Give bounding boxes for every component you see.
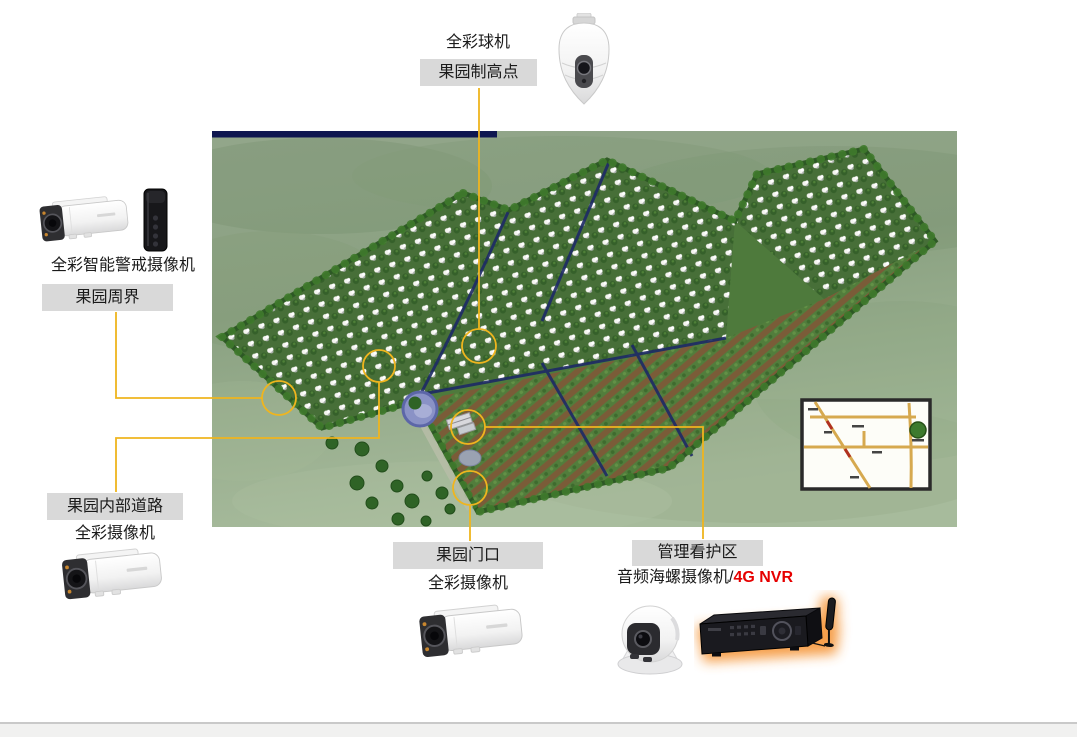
road-location-box: 果园内部道路 <box>47 493 183 520</box>
footer-strip <box>0 722 1077 737</box>
road-device-label: 全彩摄像机 <box>47 524 183 544</box>
orchard-site-dot <box>910 422 926 438</box>
bullet-camera-icon <box>52 544 172 604</box>
site-location-inset-map <box>802 400 930 489</box>
management-location-box: 管理看护区 <box>632 540 763 566</box>
bullet-camera-icon <box>34 184 134 254</box>
turret-camera-icon <box>610 598 690 678</box>
4g-nvr-icon <box>694 590 864 680</box>
ptz-dome-camera-icon <box>551 13 617 109</box>
management-device-label: 音频海螺摄像机/4G NVR <box>605 568 805 588</box>
gate-location-box: 果园门口 <box>393 542 543 569</box>
gate-device-label: 全彩摄像机 <box>393 574 543 594</box>
management-device-prefix: 音频海螺摄像机/ <box>617 569 733 586</box>
orchard-aerial-rendering <box>212 131 957 527</box>
highpoint-device-label: 全彩球机 <box>408 33 548 53</box>
bullet-camera-icon <box>412 600 530 662</box>
perimeter-device-label: 全彩智能警戒摄像机 <box>36 256 210 276</box>
navy-top-bar <box>212 131 497 138</box>
perimeter-location-box: 果园周界 <box>42 284 173 311</box>
management-device-suffix: 4G NVR <box>733 569 793 586</box>
highpoint-location-box: 果园制高点 <box>420 59 537 86</box>
alarm-strobe-icon <box>142 188 169 252</box>
small-pond <box>459 450 481 466</box>
slide-canvas: 全彩球机 果园制高点 全彩智能警戒摄像机 果园周界 果园内部道路 全彩摄像机 果… <box>0 0 1077 737</box>
